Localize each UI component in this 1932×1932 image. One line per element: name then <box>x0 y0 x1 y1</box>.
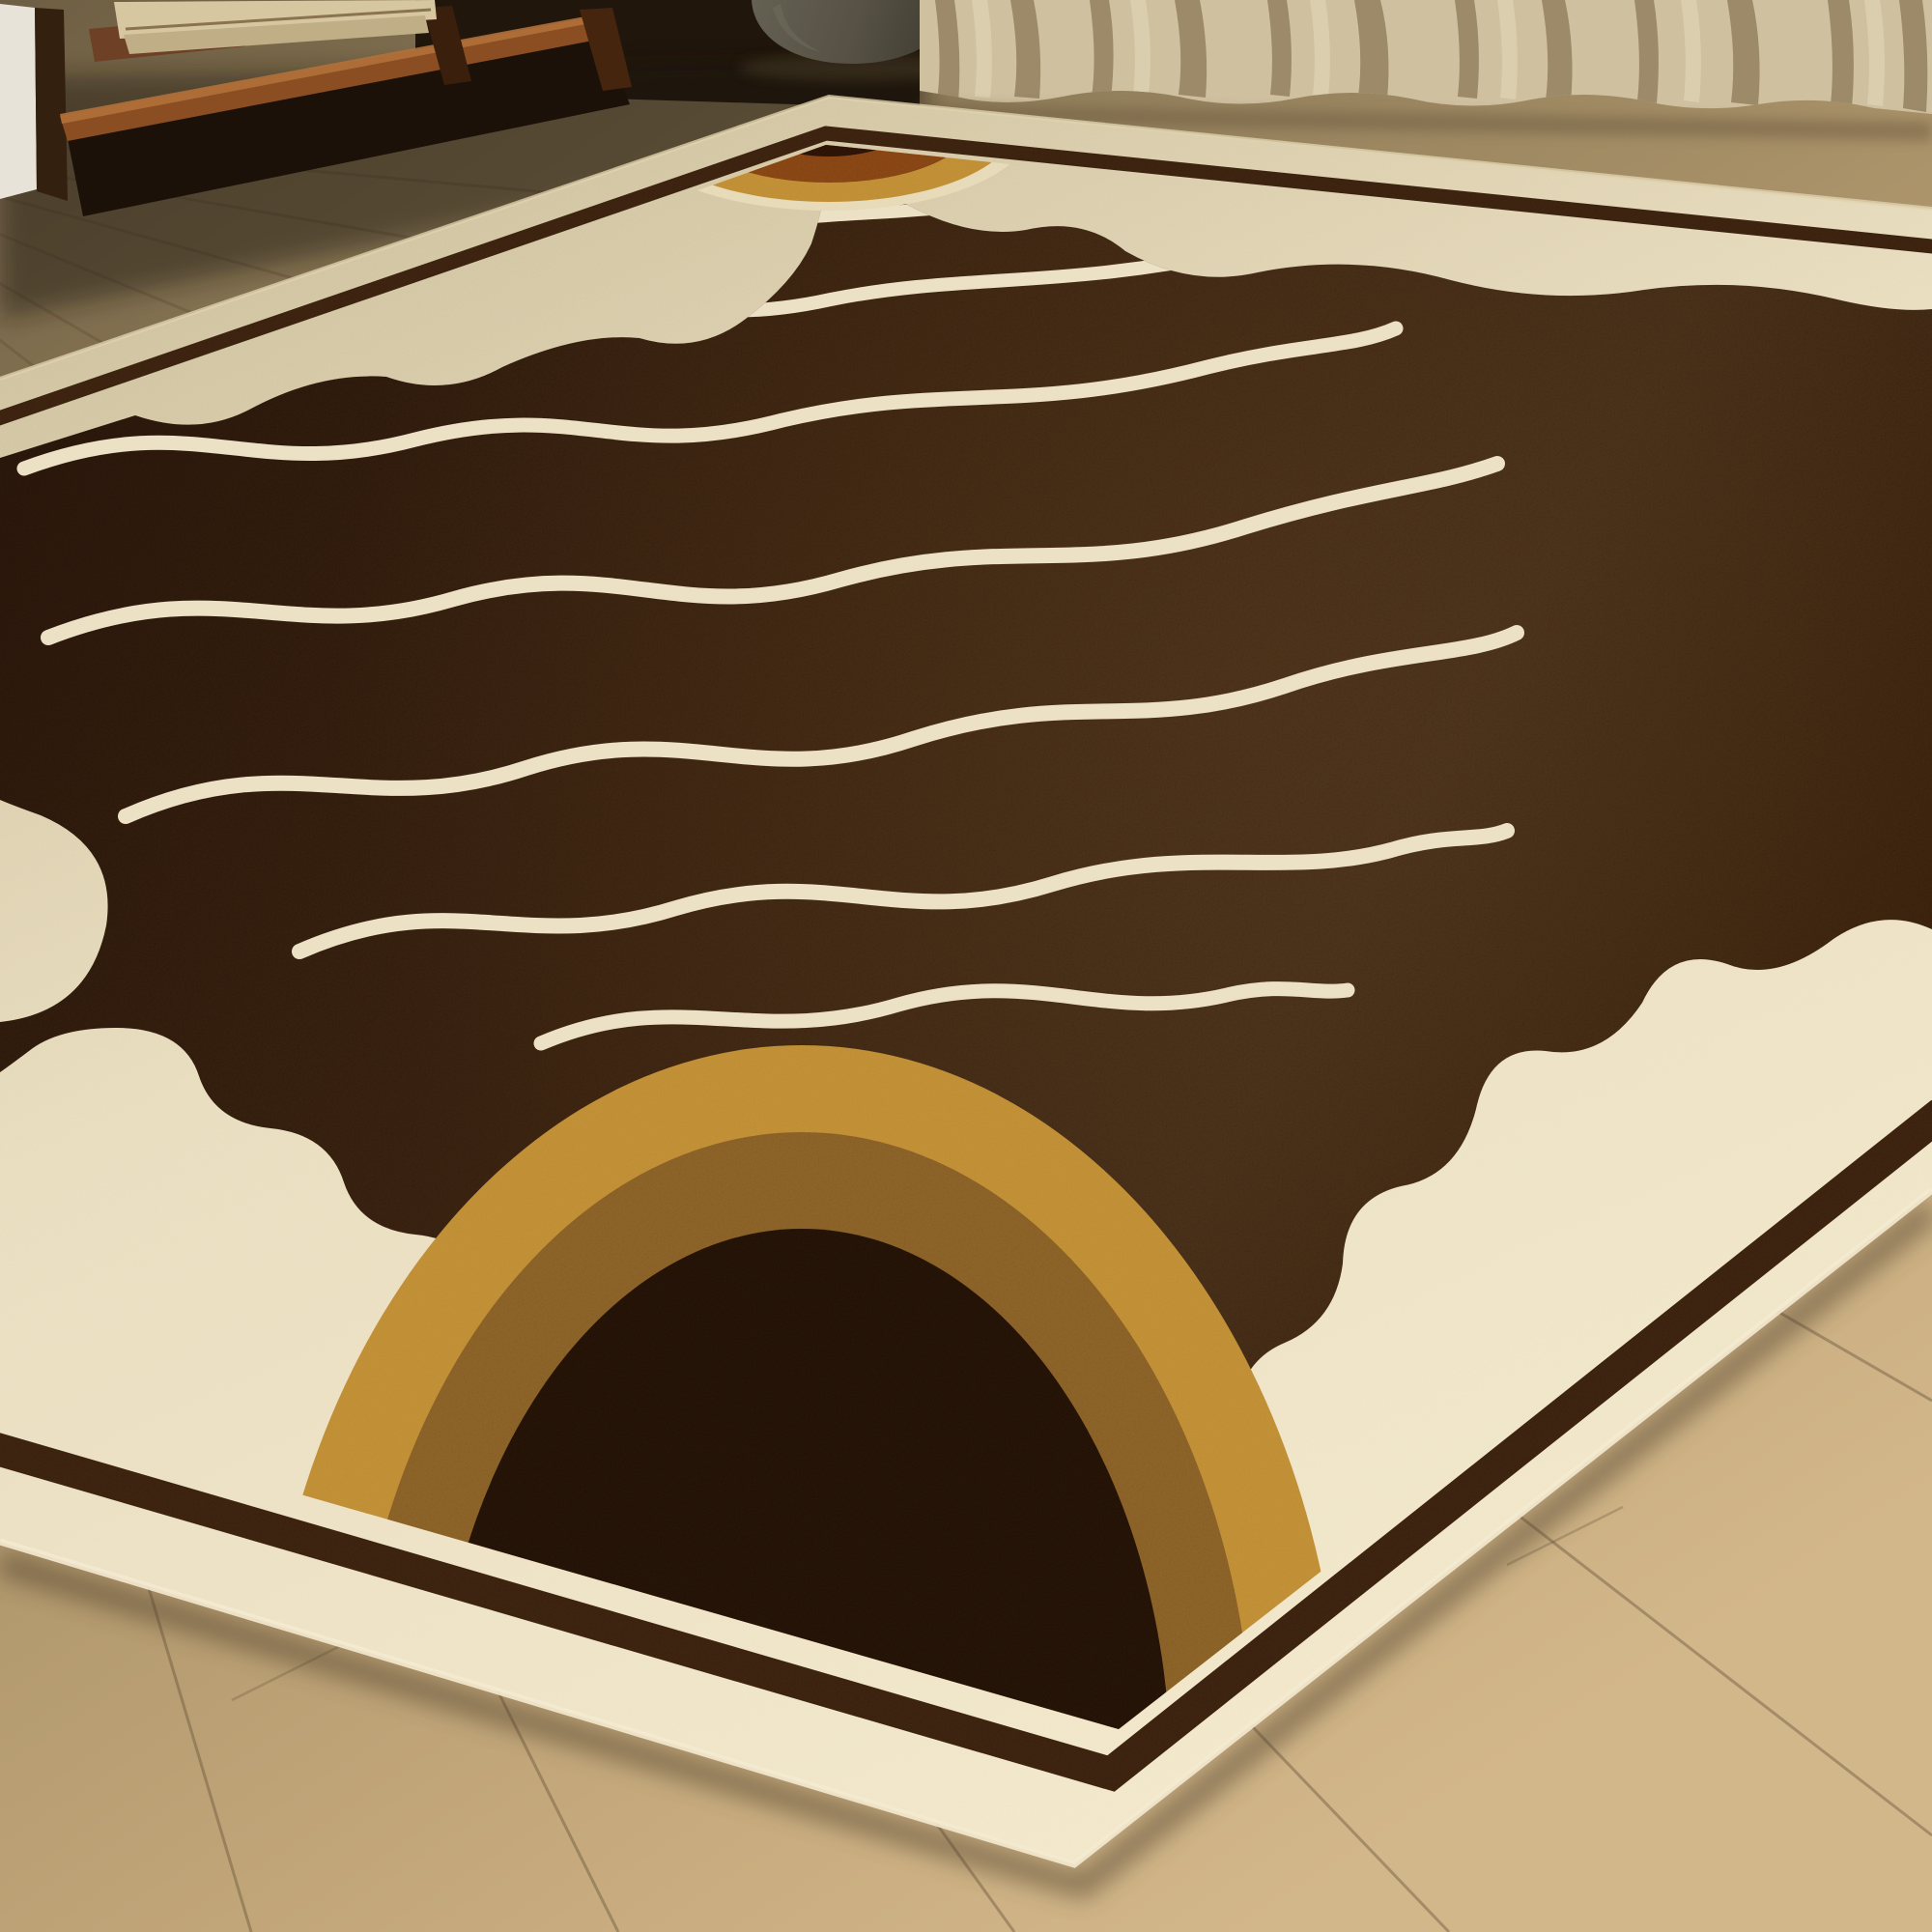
white-cabinet-panel <box>0 4 37 199</box>
console-side-strut <box>35 8 68 201</box>
room-photo <box>0 0 1932 1932</box>
scene-svg <box>0 0 1932 1932</box>
